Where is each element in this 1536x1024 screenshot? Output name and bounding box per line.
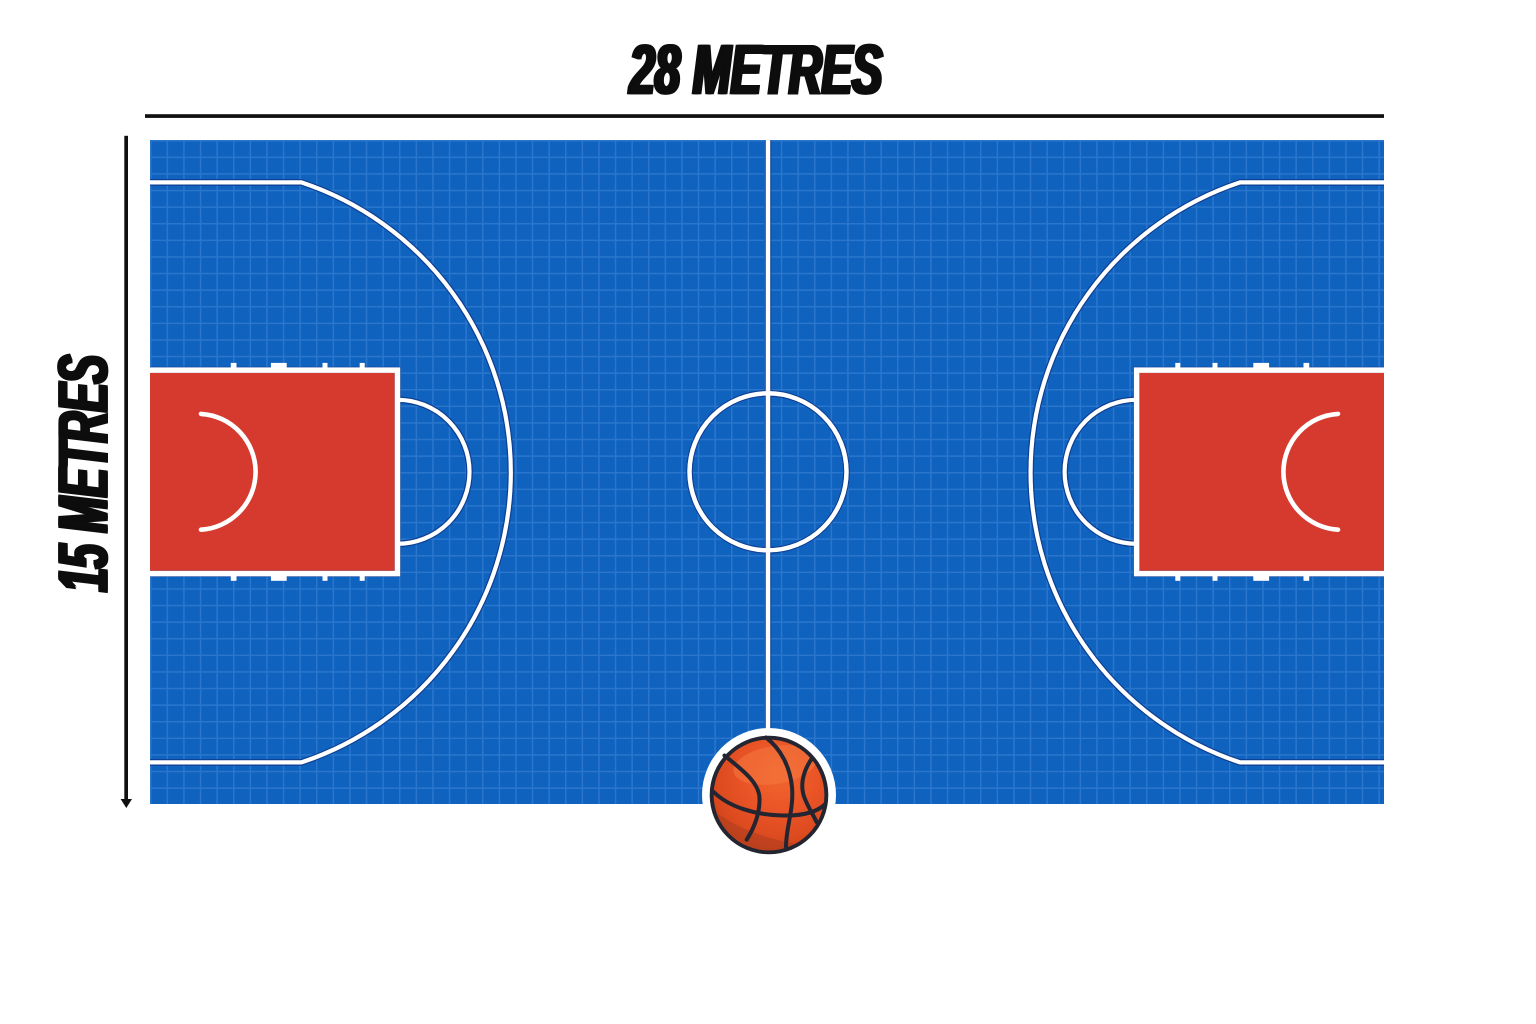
svg-text:28 METRES: 28 METRES — [630, 30, 884, 108]
svg-text:15 METRES: 15 METRES — [45, 353, 122, 590]
